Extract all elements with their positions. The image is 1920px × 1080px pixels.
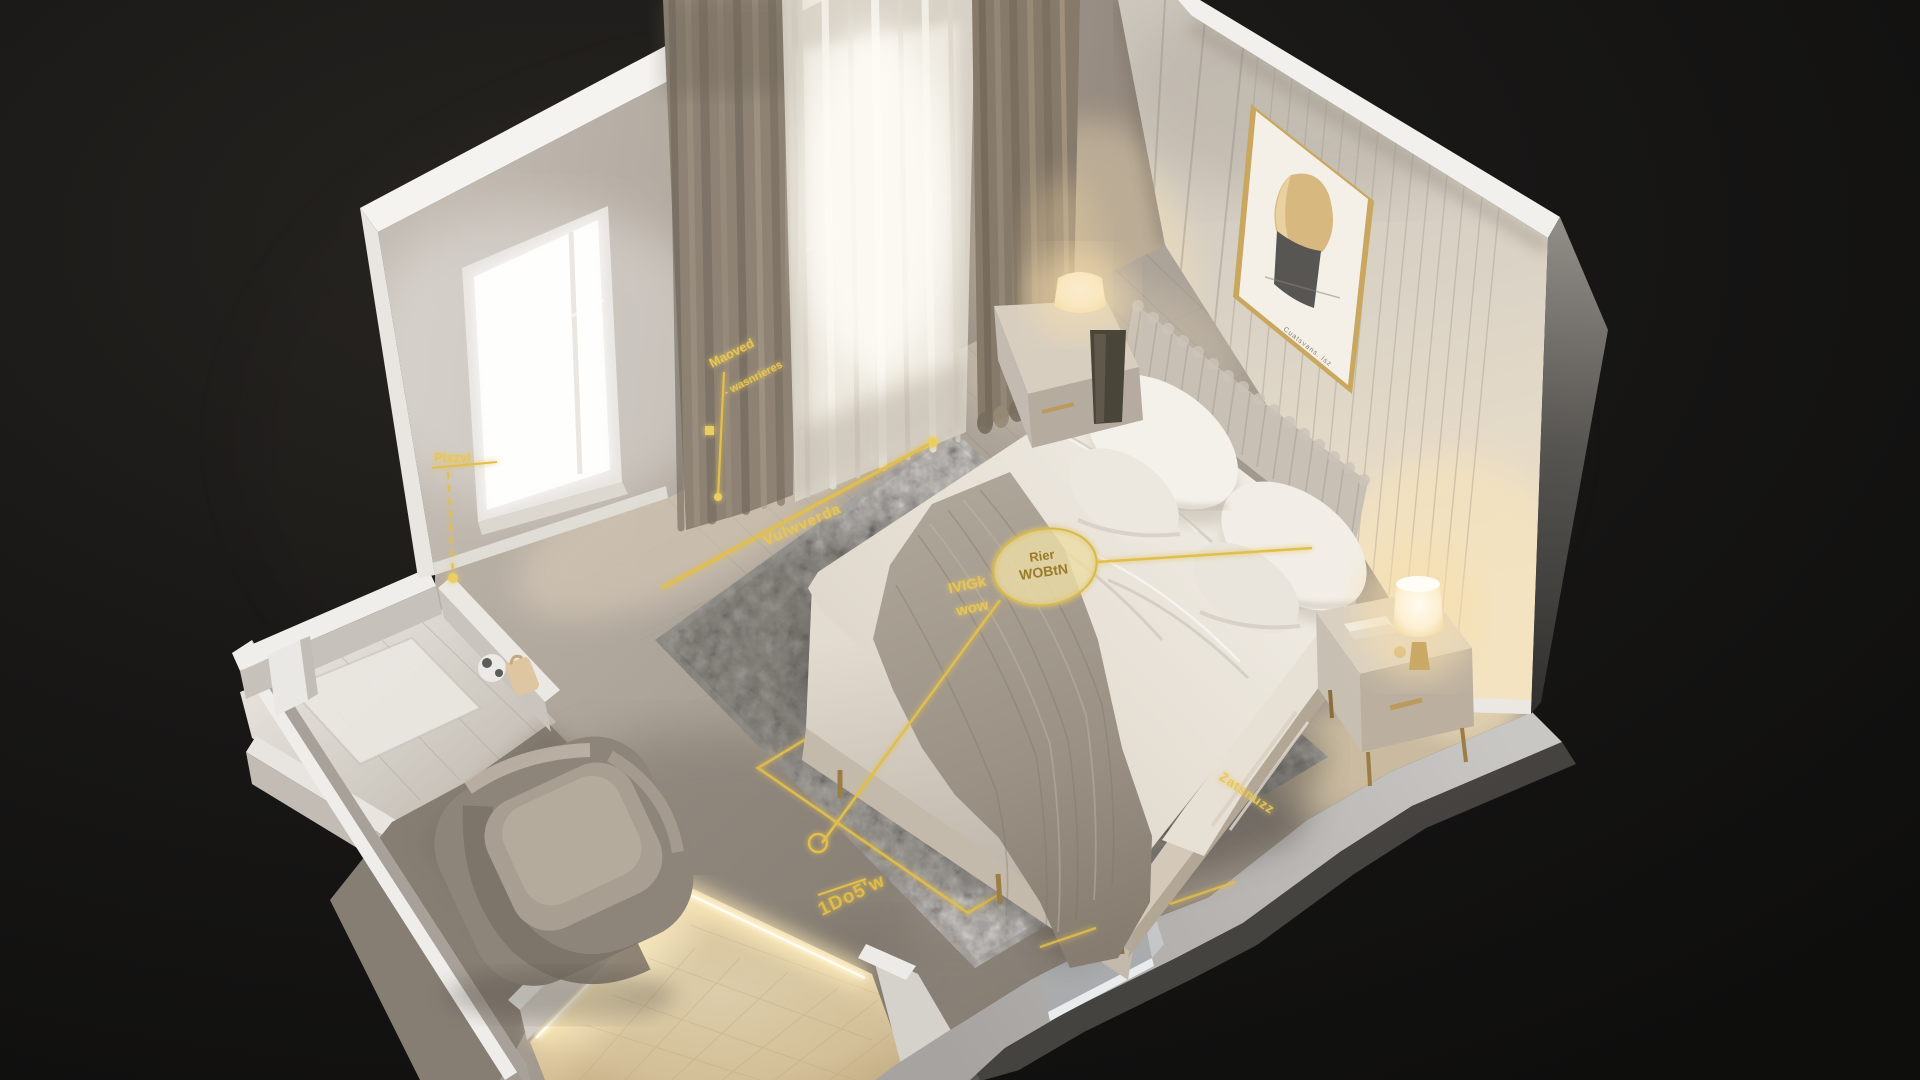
svg-text:Plxzvl: Plxzvl: [434, 450, 471, 465]
